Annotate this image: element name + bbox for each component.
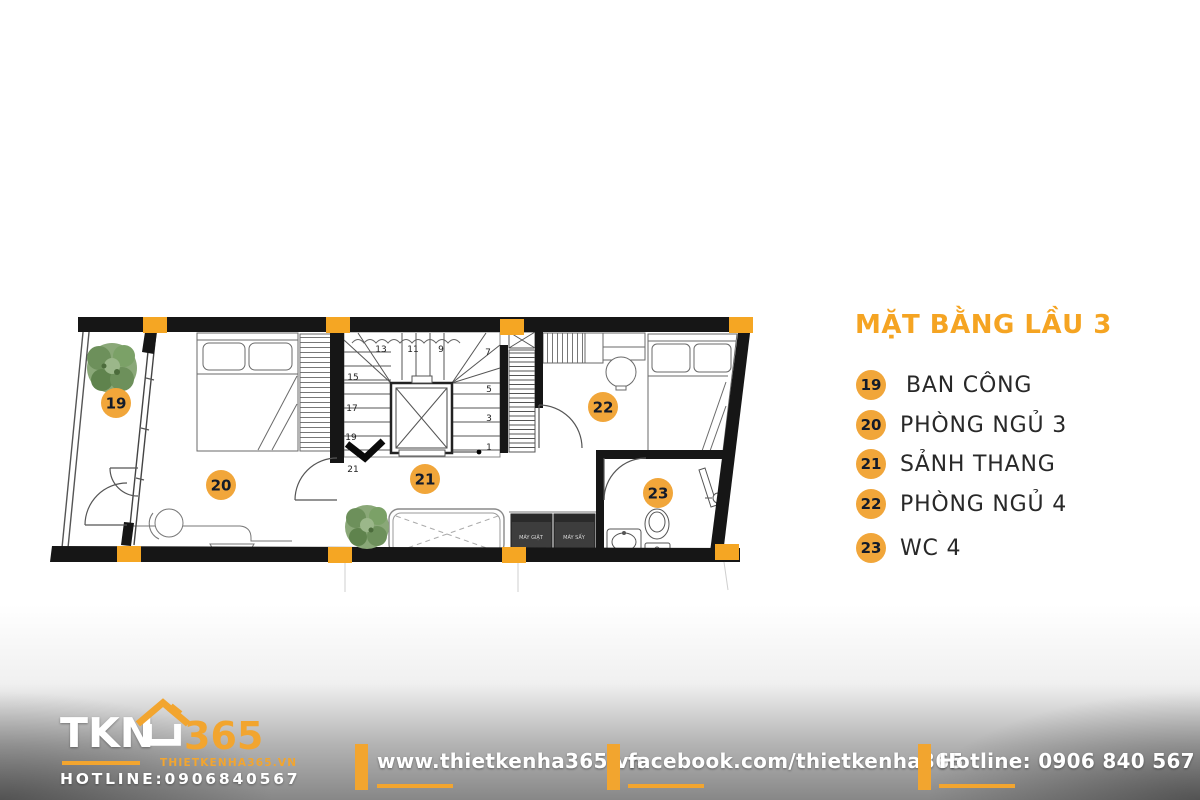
legend-badge: 19 bbox=[856, 370, 886, 400]
legend-label: PHÒNG NGỦ 3 bbox=[900, 413, 1067, 438]
legend-label: BAN CÔNG bbox=[906, 373, 1032, 398]
badge-bedroom3: 20 bbox=[206, 470, 236, 500]
floor-plan: 1 3 5 7 9 11 13 15 17 19 21 MÁY GIẶT MÁY… bbox=[40, 295, 770, 600]
badge-stairhall: 21 bbox=[410, 464, 440, 494]
legend-badge: 22 bbox=[856, 489, 886, 519]
badge-bedroom4: 22 bbox=[588, 392, 618, 422]
step-number: 11 bbox=[407, 345, 418, 355]
dryer-label: MÁY SẤY bbox=[563, 533, 586, 541]
step-number: 21 bbox=[347, 465, 358, 475]
stair-start-dot bbox=[477, 450, 482, 455]
bottom-right-shade bbox=[820, 650, 1200, 800]
step-number: 19 bbox=[345, 433, 357, 443]
logo-365-text: 365 bbox=[184, 717, 263, 755]
page-title: MẶT BẰNG LẦU 3 bbox=[855, 310, 1112, 340]
poster-canvas: 1 3 5 7 9 11 13 15 17 19 21 MÁY GIẶT MÁY… bbox=[0, 0, 1200, 800]
legend-item: 21 SẢNH THANG bbox=[856, 449, 1056, 479]
step-number: 13 bbox=[375, 345, 386, 355]
legend-item: 23 WC 4 bbox=[856, 533, 961, 563]
cabinet-4 bbox=[585, 333, 603, 363]
badge-balcony: 19 bbox=[101, 388, 131, 418]
step-number: 9 bbox=[438, 345, 444, 355]
svg-text:21: 21 bbox=[415, 471, 436, 489]
tree-balcony bbox=[87, 343, 137, 393]
pillow bbox=[203, 343, 245, 370]
wall-wc bbox=[596, 450, 604, 554]
svg-text:20: 20 bbox=[211, 477, 232, 495]
facebook-text: facebook.com/thietkenha365 bbox=[628, 749, 964, 773]
website-accent-bar bbox=[355, 744, 368, 790]
legend-label: SẢNH THANG bbox=[900, 452, 1056, 477]
construction-lines bbox=[345, 562, 728, 592]
website-text: www.thietkenha365.vn bbox=[377, 749, 643, 773]
chair-4 bbox=[606, 357, 636, 387]
facebook-underline bbox=[628, 784, 704, 788]
step-number: 15 bbox=[347, 373, 358, 383]
svg-text:22: 22 bbox=[593, 399, 614, 417]
website-underline bbox=[377, 784, 453, 788]
step-number: 1 bbox=[486, 443, 492, 453]
badge-wc: 23 bbox=[643, 478, 673, 508]
hotline-accent-bar bbox=[918, 744, 931, 790]
legend-badge: 20 bbox=[856, 410, 886, 440]
wall-stair bbox=[330, 317, 344, 463]
svg-text:23: 23 bbox=[648, 485, 669, 503]
legend-item: 20 PHÒNG NGỦ 3 bbox=[856, 410, 1067, 440]
svg-text:19: 19 bbox=[106, 395, 127, 413]
light-shaft bbox=[509, 332, 535, 452]
tree-hall bbox=[345, 505, 389, 549]
legend-badge: 21 bbox=[856, 449, 886, 479]
step-number: 17 bbox=[346, 404, 357, 414]
wardrobe-4 bbox=[543, 333, 585, 363]
hotline-underline bbox=[939, 784, 1015, 788]
facebook-accent-bar bbox=[607, 744, 620, 790]
legend-badge: 23 bbox=[856, 533, 886, 563]
logo-rule bbox=[62, 761, 140, 765]
step-number: 3 bbox=[486, 414, 492, 424]
company-logo: TKN 365 THIETKENHA365.VN HOTLINE:0906840… bbox=[60, 697, 300, 795]
legend-label: WC 4 bbox=[900, 536, 961, 561]
stair-treads-right bbox=[452, 383, 500, 457]
washer-label: MÁY GIẶT bbox=[519, 534, 544, 541]
pillow bbox=[652, 344, 690, 372]
step-number: 5 bbox=[486, 385, 492, 395]
legend-item: 22 PHÒNG NGỦ 4 bbox=[856, 489, 1067, 519]
hotline-text: Hotline: 0906 840 567 bbox=[939, 749, 1195, 773]
pillow bbox=[249, 343, 292, 370]
wall-bottom bbox=[50, 546, 740, 562]
pillow bbox=[694, 344, 731, 372]
logo-site-text: THIETKENHA365.VN bbox=[160, 757, 297, 769]
wardrobe-3 bbox=[300, 334, 334, 451]
legend-label: PHÒNG NGỦ 4 bbox=[900, 492, 1067, 517]
elevator-shaft bbox=[391, 376, 452, 456]
chair-3 bbox=[155, 509, 183, 537]
wall-top bbox=[78, 317, 752, 332]
logo-hotline-text: HOTLINE:0906840567 bbox=[60, 770, 300, 788]
step-number: 7 bbox=[485, 348, 491, 358]
legend-item: 19 BAN CÔNG bbox=[856, 370, 1032, 400]
